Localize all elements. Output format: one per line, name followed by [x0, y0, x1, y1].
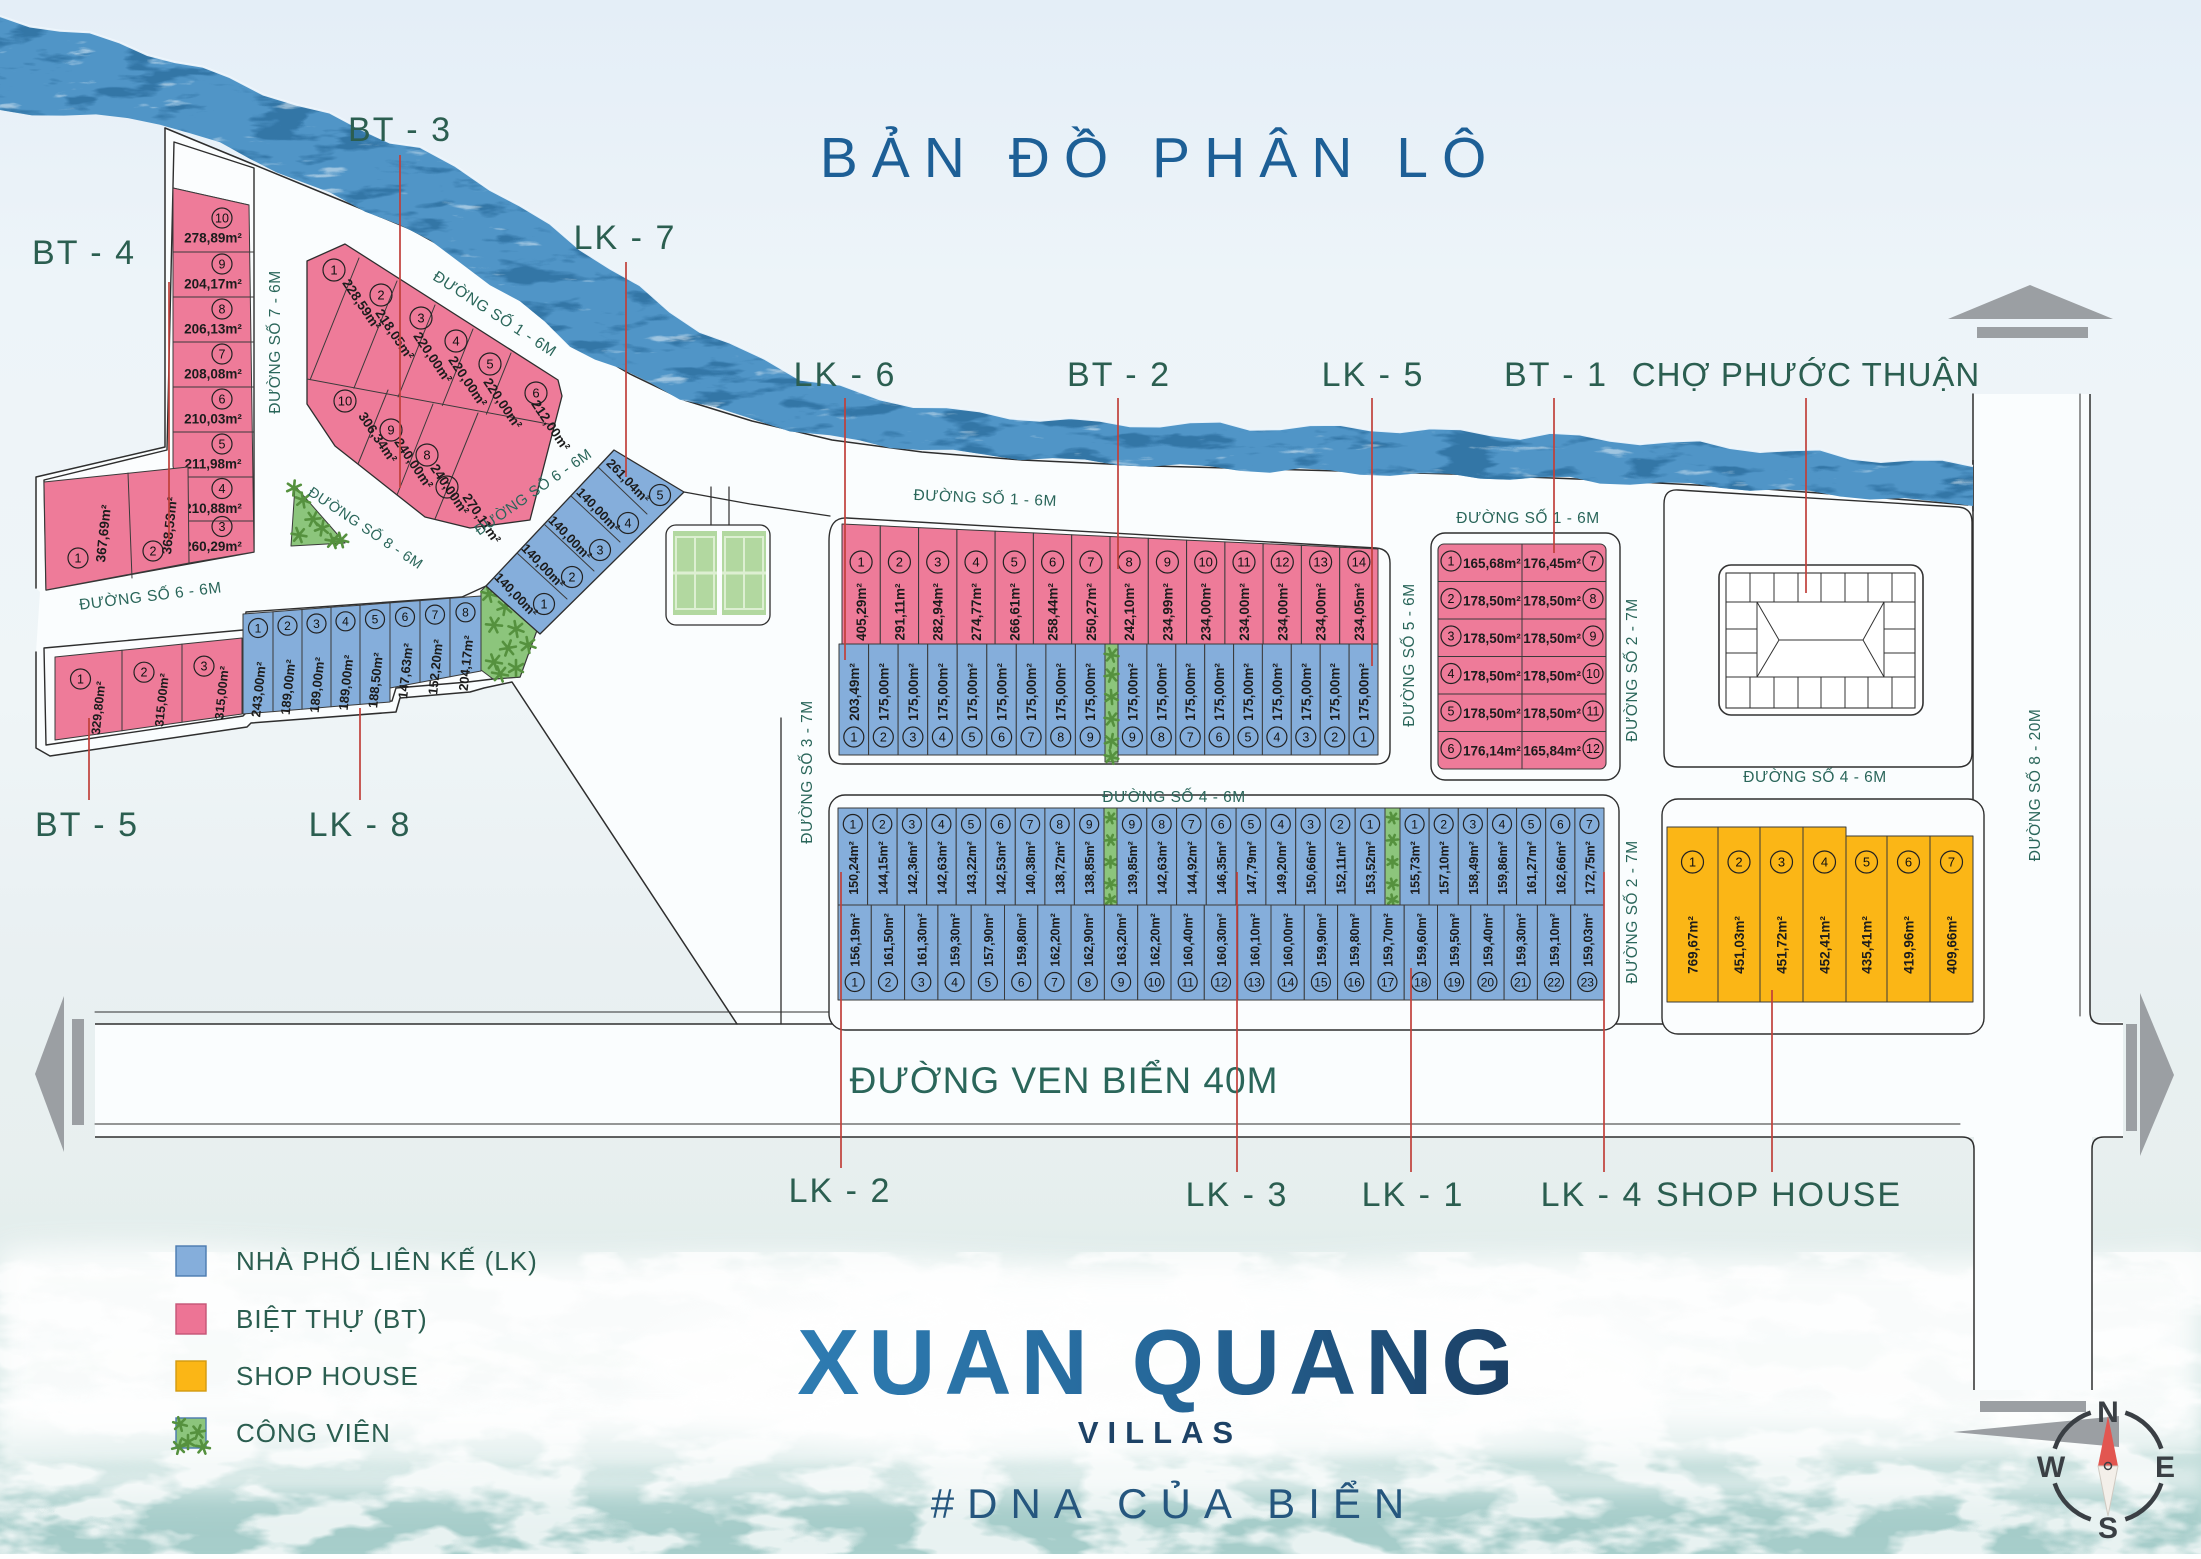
svg-text:8: 8: [1084, 975, 1091, 989]
svg-text:#DNA CỦA BIỂN: #DNA CỦA BIỂN: [931, 1479, 1417, 1527]
svg-text:8: 8: [219, 303, 226, 317]
svg-text:4: 4: [938, 817, 945, 831]
svg-text:3: 3: [219, 520, 226, 534]
svg-text:4: 4: [951, 975, 958, 989]
svg-text:10: 10: [338, 394, 352, 409]
svg-text:161,30m²: 161,30m²: [915, 913, 929, 967]
svg-text:2: 2: [1440, 817, 1447, 831]
svg-text:ĐƯỜNG SỐ 2 - 7M: ĐƯỜNG SỐ 2 - 7M: [1623, 840, 1641, 983]
svg-text:419,96m²: 419,96m²: [1902, 916, 1917, 974]
svg-text:144,15m²: 144,15m²: [876, 841, 890, 895]
svg-text:234,00m²: 234,00m²: [1199, 583, 1214, 641]
svg-text:1: 1: [1367, 817, 1374, 831]
svg-text:210,88m²: 210,88m²: [184, 501, 242, 516]
svg-text:175,00m²: 175,00m²: [906, 663, 921, 721]
svg-text:14: 14: [1281, 975, 1295, 989]
svg-text:LK - 5: LK - 5: [1322, 356, 1425, 394]
svg-text:409,66m²: 409,66m²: [1945, 916, 1960, 974]
svg-text:3: 3: [1448, 630, 1455, 644]
svg-text:4: 4: [1273, 731, 1280, 745]
svg-text:5: 5: [372, 613, 379, 627]
svg-text:1: 1: [849, 817, 856, 831]
svg-text:5: 5: [968, 817, 975, 831]
svg-text:142,53m²: 142,53m²: [995, 841, 1009, 895]
svg-text:2: 2: [141, 666, 148, 680]
svg-text:6: 6: [402, 610, 409, 624]
svg-text:22: 22: [1547, 975, 1561, 989]
svg-text:SHOP HOUSE: SHOP HOUSE: [236, 1361, 419, 1391]
svg-text:175,00m²: 175,00m²: [1212, 663, 1227, 721]
svg-text:18: 18: [1414, 975, 1428, 989]
svg-text:10: 10: [1198, 555, 1212, 570]
svg-text:234,05m²: 234,05m²: [1352, 583, 1367, 641]
svg-text:6: 6: [1448, 742, 1455, 756]
svg-text:2: 2: [880, 731, 887, 745]
svg-text:160,10m²: 160,10m²: [1248, 913, 1262, 967]
svg-text:4: 4: [939, 731, 946, 745]
svg-text:7: 7: [1188, 817, 1195, 831]
svg-text:12: 12: [1214, 975, 1228, 989]
svg-text:4: 4: [342, 615, 349, 629]
svg-text:7: 7: [432, 608, 439, 622]
svg-text:204,17m²: 204,17m²: [184, 277, 242, 292]
svg-text:139,85m²: 139,85m²: [1126, 841, 1140, 895]
svg-text:9: 9: [1086, 817, 1093, 831]
svg-text:1: 1: [75, 552, 82, 566]
svg-text:175,00m²: 175,00m²: [1328, 663, 1343, 721]
svg-text:23: 23: [1581, 975, 1595, 989]
svg-text:3: 3: [1302, 731, 1309, 745]
svg-text:160,30m²: 160,30m²: [1215, 913, 1229, 967]
svg-text:1: 1: [1689, 855, 1696, 870]
svg-text:3: 3: [934, 555, 941, 570]
svg-text:7: 7: [443, 480, 450, 495]
svg-text:6: 6: [1049, 555, 1056, 570]
svg-text:172,75m²: 172,75m²: [1583, 841, 1597, 895]
svg-text:BT - 4: BT - 4: [32, 234, 136, 272]
svg-text:159,03m²: 159,03m²: [1581, 913, 1595, 967]
svg-text:162,66m²: 162,66m²: [1554, 841, 1568, 895]
svg-text:2: 2: [1448, 592, 1455, 606]
svg-text:405,29m²: 405,29m²: [854, 583, 869, 641]
svg-text:5: 5: [219, 438, 226, 452]
svg-text:6: 6: [219, 393, 226, 407]
svg-text:155,73m²: 155,73m²: [1409, 841, 1423, 895]
svg-text:178,50m²: 178,50m²: [1523, 631, 1581, 646]
svg-text:8: 8: [1057, 731, 1064, 745]
svg-text:159,30m²: 159,30m²: [949, 913, 963, 967]
svg-text:6: 6: [1557, 817, 1564, 831]
svg-text:162,90m²: 162,90m²: [1082, 913, 1096, 967]
svg-text:5: 5: [1011, 555, 1018, 570]
svg-text:6: 6: [1018, 975, 1025, 989]
svg-text:1: 1: [77, 673, 84, 687]
svg-text:7: 7: [1590, 555, 1597, 569]
svg-text:19: 19: [1447, 975, 1461, 989]
svg-text:2: 2: [1331, 731, 1338, 745]
svg-text:211,98m²: 211,98m²: [184, 457, 242, 472]
svg-text:7: 7: [219, 348, 226, 362]
svg-text:157,10m²: 157,10m²: [1438, 841, 1452, 895]
svg-text:282,94m²: 282,94m²: [931, 583, 946, 641]
svg-text:161,50m²: 161,50m²: [882, 913, 896, 967]
svg-text:2: 2: [377, 288, 384, 303]
svg-text:1: 1: [1448, 555, 1455, 569]
svg-text:160,00m²: 160,00m²: [1282, 913, 1296, 967]
svg-text:4: 4: [625, 517, 632, 531]
svg-text:4: 4: [1821, 855, 1828, 870]
svg-text:153,52m²: 153,52m²: [1364, 841, 1378, 895]
svg-text:142,63m²: 142,63m²: [935, 841, 949, 895]
svg-text:8: 8: [1590, 592, 1597, 606]
svg-text:1: 1: [330, 263, 337, 278]
svg-text:17: 17: [1381, 975, 1395, 989]
svg-text:165,84m²: 165,84m²: [1523, 744, 1581, 759]
svg-text:147,79m²: 147,79m²: [1245, 841, 1259, 895]
svg-text:4: 4: [219, 482, 226, 496]
svg-text:266,61m²: 266,61m²: [1007, 583, 1022, 641]
svg-text:178,50m²: 178,50m²: [1463, 669, 1521, 684]
svg-text:159,10m²: 159,10m²: [1548, 913, 1562, 967]
svg-text:LK - 7: LK - 7: [574, 219, 677, 257]
svg-text:6: 6: [1216, 731, 1223, 745]
svg-text:178,50m²: 178,50m²: [1463, 594, 1521, 609]
svg-text:9: 9: [1129, 731, 1136, 745]
svg-text:LK - 4: LK - 4: [1541, 1176, 1644, 1214]
svg-text:SHOP HOUSE: SHOP HOUSE: [1656, 1176, 1902, 1214]
svg-text:234,99m²: 234,99m²: [1160, 583, 1175, 641]
svg-text:7: 7: [1051, 975, 1058, 989]
svg-text:3: 3: [1470, 817, 1477, 831]
svg-text:ĐƯỜNG SỐ 4 - 6M: ĐƯỜNG SỐ 4 - 6M: [1102, 788, 1245, 806]
svg-text:451,03m²: 451,03m²: [1732, 916, 1747, 974]
svg-text:156,19m²: 156,19m²: [849, 913, 863, 967]
svg-text:9: 9: [1590, 630, 1597, 644]
svg-text:CHỢ PHƯỚC THUẬN: CHỢ PHƯỚC THUẬN: [1632, 356, 1981, 393]
svg-text:9: 9: [1164, 555, 1171, 570]
svg-text:234,00m²: 234,00m²: [1314, 583, 1329, 641]
svg-text:21: 21: [1514, 975, 1528, 989]
svg-text:208,08m²: 208,08m²: [184, 367, 242, 382]
svg-text:159,50m²: 159,50m²: [1448, 913, 1462, 967]
svg-text:XUAN QUANG: XUAN QUANG: [797, 1310, 1523, 1414]
svg-text:5: 5: [969, 731, 976, 745]
svg-text:175,00m²: 175,00m²: [1154, 663, 1169, 721]
svg-text:4: 4: [452, 334, 459, 349]
svg-text:1: 1: [857, 555, 864, 570]
svg-text:ĐƯỜNG SỐ 1 - 6M: ĐƯỜNG SỐ 1 - 6M: [1456, 509, 1599, 527]
svg-text:VILLAS: VILLAS: [1078, 1415, 1242, 1450]
svg-text:3: 3: [909, 731, 916, 745]
svg-text:3: 3: [1778, 855, 1785, 870]
svg-text:ĐƯỜNG SỐ 3 - 7M: ĐƯỜNG SỐ 3 - 7M: [798, 700, 816, 843]
svg-text:159,70m²: 159,70m²: [1382, 913, 1396, 967]
svg-text:BT - 1: BT - 1: [1504, 356, 1608, 394]
svg-text:175,00m²: 175,00m²: [995, 663, 1010, 721]
svg-text:10: 10: [1148, 975, 1162, 989]
svg-text:178,50m²: 178,50m²: [1463, 706, 1521, 721]
svg-text:234,00m²: 234,00m²: [1237, 583, 1252, 641]
svg-text:7: 7: [1187, 731, 1194, 745]
svg-text:6: 6: [1905, 855, 1912, 870]
svg-text:1: 1: [541, 598, 548, 612]
svg-text:4: 4: [1499, 817, 1506, 831]
svg-text:146,35m²: 146,35m²: [1215, 841, 1229, 895]
svg-text:10: 10: [1586, 667, 1600, 681]
svg-text:163,20m²: 163,20m²: [1115, 913, 1129, 967]
svg-text:4: 4: [1448, 667, 1455, 681]
svg-text:175,00m²: 175,00m²: [1270, 663, 1285, 721]
svg-text:BT - 2: BT - 2: [1067, 356, 1171, 394]
svg-text:159,30m²: 159,30m²: [1515, 913, 1529, 967]
svg-text:178,50m²: 178,50m²: [1523, 706, 1581, 721]
svg-text:8: 8: [1056, 817, 1063, 831]
svg-text:13: 13: [1313, 555, 1327, 570]
svg-text:8: 8: [1158, 817, 1165, 831]
svg-text:175,00m²: 175,00m²: [876, 663, 891, 721]
svg-text:5: 5: [1528, 817, 1535, 831]
svg-text:16: 16: [1348, 975, 1362, 989]
svg-text:162,20m²: 162,20m²: [1148, 913, 1162, 967]
svg-text:13: 13: [1248, 975, 1262, 989]
svg-text:3: 3: [417, 311, 424, 326]
svg-text:12: 12: [1275, 555, 1289, 570]
svg-text:6: 6: [1218, 817, 1225, 831]
svg-text:140,38m²: 140,38m²: [1024, 841, 1038, 895]
svg-text:2: 2: [879, 817, 886, 831]
svg-text:LK - 2: LK - 2: [789, 1172, 892, 1210]
svg-text:242,10m²: 242,10m²: [1122, 583, 1137, 641]
svg-text:769,67m²: 769,67m²: [1686, 916, 1701, 974]
svg-text:3: 3: [597, 544, 604, 558]
svg-text:144,92m²: 144,92m²: [1185, 841, 1199, 895]
svg-text:6: 6: [998, 731, 1005, 745]
svg-text:203,49m²: 203,49m²: [847, 663, 862, 721]
svg-text:4: 4: [1277, 817, 1284, 831]
svg-text:3: 3: [201, 660, 208, 674]
svg-text:2: 2: [1337, 817, 1344, 831]
svg-text:206,13m²: 206,13m²: [184, 322, 242, 337]
svg-text:142,36m²: 142,36m²: [906, 841, 920, 895]
svg-text:LK - 1: LK - 1: [1362, 1176, 1465, 1214]
svg-text:S: S: [2098, 1512, 2118, 1545]
svg-text:175,00m²: 175,00m²: [1299, 663, 1314, 721]
svg-text:ĐƯỜNG SỐ 8 - 20M: ĐƯỜNG SỐ 8 - 20M: [2026, 709, 2044, 862]
svg-text:165,68m²: 165,68m²: [1463, 556, 1521, 571]
svg-text:ĐƯỜNG SỐ 2 - 7M: ĐƯỜNG SỐ 2 - 7M: [1623, 598, 1641, 741]
svg-text:175,00m²: 175,00m²: [935, 663, 950, 721]
svg-text:159,90m²: 159,90m²: [1315, 913, 1329, 967]
svg-text:175,00m²: 175,00m²: [965, 663, 980, 721]
svg-text:152,11m²: 152,11m²: [1334, 842, 1348, 895]
svg-text:250,27m²: 250,27m²: [1084, 583, 1099, 641]
svg-text:LK - 3: LK - 3: [1186, 1176, 1289, 1214]
svg-text:175,00m²: 175,00m²: [1054, 663, 1069, 721]
svg-text:435,41m²: 435,41m²: [1860, 916, 1875, 974]
svg-text:W: W: [2037, 1451, 2066, 1484]
svg-text:175,00m²: 175,00m²: [1024, 663, 1039, 721]
svg-text:2: 2: [885, 975, 892, 989]
svg-text:BIỆT THỰ (BT): BIỆT THỰ (BT): [236, 1304, 428, 1334]
svg-text:5: 5: [1245, 731, 1252, 745]
svg-text:9: 9: [1129, 817, 1136, 831]
svg-text:8: 8: [1158, 731, 1165, 745]
svg-text:142,63m²: 142,63m²: [1156, 841, 1170, 895]
svg-text:9: 9: [387, 423, 394, 438]
svg-text:159,80m²: 159,80m²: [1015, 913, 1029, 967]
svg-text:E: E: [2155, 1451, 2175, 1484]
svg-text:9: 9: [1087, 731, 1094, 745]
svg-text:5: 5: [657, 489, 664, 503]
svg-text:8: 8: [423, 448, 430, 463]
svg-text:2: 2: [1735, 855, 1742, 870]
svg-text:6: 6: [997, 817, 1004, 831]
svg-text:5: 5: [985, 975, 992, 989]
svg-text:7: 7: [1948, 855, 1955, 870]
svg-text:8: 8: [462, 606, 469, 620]
svg-text:7: 7: [1586, 817, 1593, 831]
svg-text:234,00m²: 234,00m²: [1275, 583, 1290, 641]
svg-text:175,00m²: 175,00m²: [1125, 663, 1140, 721]
svg-text:7: 7: [1027, 817, 1034, 831]
svg-text:149,20m²: 149,20m²: [1275, 841, 1289, 895]
svg-text:7: 7: [1087, 555, 1094, 570]
svg-text:274,77m²: 274,77m²: [969, 583, 984, 641]
svg-text:10: 10: [215, 212, 229, 226]
svg-text:5: 5: [1448, 705, 1455, 719]
svg-text:159,86m²: 159,86m²: [1496, 841, 1510, 895]
svg-text:3: 3: [918, 975, 925, 989]
svg-text:176,45m²: 176,45m²: [1523, 556, 1581, 571]
svg-text:160,40m²: 160,40m²: [1182, 913, 1196, 967]
svg-text:ĐƯỜNG SỐ 7 - 6M: ĐƯỜNG SỐ 7 - 6M: [266, 270, 284, 413]
svg-text:178,50m²: 178,50m²: [1523, 594, 1581, 609]
svg-text:158,49m²: 158,49m²: [1467, 841, 1481, 895]
svg-text:CÔNG VIÊN: CÔNG VIÊN: [236, 1418, 391, 1448]
svg-text:175,00m²: 175,00m²: [1357, 663, 1372, 721]
svg-text:159,80m²: 159,80m²: [1348, 913, 1362, 967]
svg-text:175,00m²: 175,00m²: [1083, 663, 1098, 721]
svg-text:451,72m²: 451,72m²: [1775, 916, 1790, 974]
svg-text:1: 1: [1360, 731, 1367, 745]
svg-text:5: 5: [486, 357, 493, 372]
svg-text:1: 1: [1411, 817, 1418, 831]
svg-text:11: 11: [1237, 555, 1251, 570]
svg-text:5: 5: [1248, 817, 1255, 831]
svg-text:1: 1: [851, 975, 858, 989]
svg-text:150,24m²: 150,24m²: [847, 841, 861, 895]
svg-text:11: 11: [1181, 975, 1194, 989]
svg-text:175,00m²: 175,00m²: [1241, 663, 1256, 721]
svg-text:3: 3: [1307, 817, 1314, 831]
svg-text:20: 20: [1481, 975, 1495, 989]
svg-text:210,03m²: 210,03m²: [184, 412, 242, 427]
svg-text:BT - 3: BT - 3: [348, 111, 452, 149]
svg-text:LK - 8: LK - 8: [309, 806, 412, 844]
svg-text:14: 14: [1352, 555, 1366, 570]
svg-text:260,29m²: 260,29m²: [184, 539, 242, 554]
svg-text:3: 3: [313, 617, 320, 631]
svg-text:7: 7: [1028, 731, 1035, 745]
svg-text:1: 1: [850, 731, 857, 745]
svg-text:161,27m²: 161,27m²: [1525, 841, 1539, 895]
svg-text:5: 5: [1863, 855, 1870, 870]
svg-text:2: 2: [150, 545, 157, 559]
svg-text:178,50m²: 178,50m²: [1463, 631, 1521, 646]
svg-text:150,66m²: 150,66m²: [1305, 841, 1319, 895]
svg-text:175,00m²: 175,00m²: [1183, 663, 1198, 721]
svg-text:178,50m²: 178,50m²: [1523, 669, 1581, 684]
svg-text:ĐƯỜNG VEN BIỂN 40M: ĐƯỜNG VEN BIỂN 40M: [850, 1059, 1279, 1101]
svg-text:9: 9: [219, 258, 226, 272]
svg-text:ĐƯỜNG SỐ 4 - 6M: ĐƯỜNG SỐ 4 - 6M: [1743, 768, 1886, 786]
svg-text:8: 8: [1125, 555, 1132, 570]
svg-text:ĐƯỜNG SỐ 5 - 6M: ĐƯỜNG SỐ 5 - 6M: [1400, 583, 1418, 726]
svg-text:176,14m²: 176,14m²: [1463, 744, 1521, 759]
svg-text:12: 12: [1586, 742, 1600, 756]
svg-text:9: 9: [1118, 975, 1125, 989]
svg-text:258,44m²: 258,44m²: [1046, 583, 1061, 641]
svg-text:BT - 5: BT - 5: [35, 806, 139, 844]
svg-text:159,40m²: 159,40m²: [1481, 913, 1495, 967]
svg-text:162,20m²: 162,20m²: [1049, 913, 1063, 967]
svg-text:159,60m²: 159,60m²: [1415, 913, 1429, 967]
svg-text:143,22m²: 143,22m²: [965, 841, 979, 895]
svg-text:2: 2: [896, 555, 903, 570]
svg-text:157,90m²: 157,90m²: [982, 913, 996, 967]
svg-text:452,41m²: 452,41m²: [1818, 916, 1833, 974]
svg-text:291,11m²: 291,11m²: [892, 583, 907, 641]
svg-text:LK - 6: LK - 6: [794, 356, 897, 394]
svg-text:3: 3: [909, 817, 916, 831]
svg-text:138,85m²: 138,85m²: [1083, 841, 1097, 895]
svg-text:11: 11: [1587, 705, 1600, 719]
svg-text:15: 15: [1314, 975, 1328, 989]
svg-text:138,72m²: 138,72m²: [1054, 841, 1068, 895]
svg-text:BẢN ĐỒ PHÂN LÔ: BẢN ĐỒ PHÂN LÔ: [820, 125, 1501, 190]
svg-text:278,89m²: 278,89m²: [184, 231, 242, 246]
svg-text:NHÀ PHỐ LIÊN KẾ (LK): NHÀ PHỐ LIÊN KẾ (LK): [236, 1246, 538, 1276]
svg-text:1: 1: [255, 621, 262, 635]
svg-text:4: 4: [972, 555, 979, 570]
svg-text:2: 2: [569, 571, 576, 585]
svg-text:2: 2: [284, 619, 291, 633]
